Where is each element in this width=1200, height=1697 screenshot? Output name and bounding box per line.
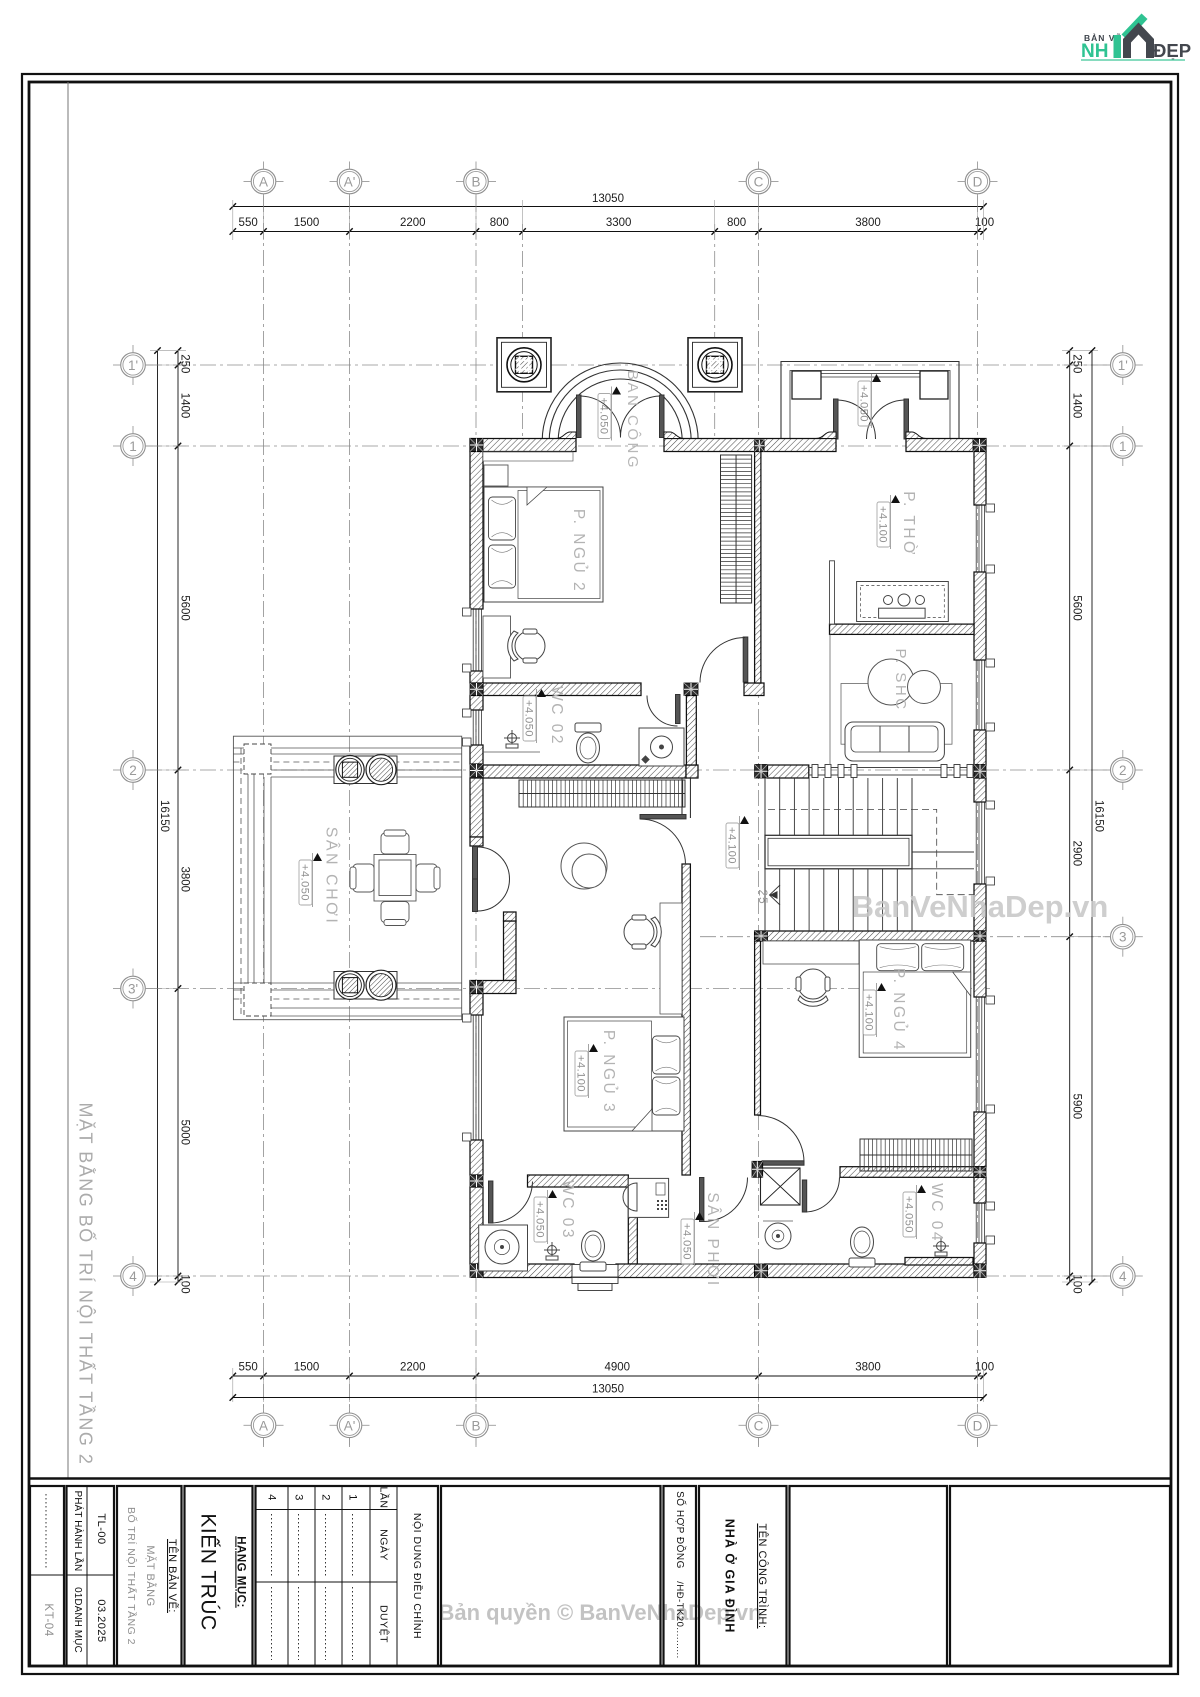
svg-text:KIẾN TRÚC: KIẾN TRÚC bbox=[196, 1513, 219, 1630]
svg-text:A': A' bbox=[344, 175, 356, 190]
svg-text:+4.050: +4.050 bbox=[523, 700, 535, 737]
svg-text:2: 2 bbox=[129, 763, 137, 778]
svg-text:550: 550 bbox=[239, 1362, 258, 1374]
svg-text:3: 3 bbox=[1119, 930, 1127, 945]
svg-text:A: A bbox=[259, 175, 268, 190]
svg-text:+4.100: +4.100 bbox=[575, 1055, 587, 1092]
svg-text:1400: 1400 bbox=[1070, 393, 1082, 419]
svg-text:550: 550 bbox=[239, 217, 258, 229]
svg-text:WC 03: WC 03 bbox=[559, 1180, 576, 1240]
svg-text:MẶT BẰNG BỐ TRÍ NỘI THẤT TẦNG: MẶT BẰNG BỐ TRÍ NỘI THẤT TẦNG 2 bbox=[75, 1103, 96, 1466]
svg-text:P. NGỦ 4: P. NGỦ 4 bbox=[890, 968, 908, 1052]
svg-text:1: 1 bbox=[129, 439, 137, 454]
svg-text:NHÀ Ở GIA ĐÌNH: NHÀ Ở GIA ĐÌNH bbox=[723, 1519, 738, 1633]
svg-text:+4.100: +4.100 bbox=[726, 827, 738, 864]
svg-text:5900: 5900 bbox=[1070, 1094, 1082, 1120]
svg-text:P. NGỦ 2: P. NGỦ 2 bbox=[570, 509, 588, 593]
svg-text:+4.050: +4.050 bbox=[681, 1223, 693, 1260]
svg-text:+4.100: +4.100 bbox=[863, 994, 875, 1031]
svg-text:B: B bbox=[471, 175, 480, 190]
svg-text:03.2025: 03.2025 bbox=[95, 1599, 107, 1642]
svg-text:3300: 3300 bbox=[606, 217, 632, 229]
svg-text:1': 1' bbox=[1118, 358, 1128, 373]
svg-text:5600: 5600 bbox=[1070, 595, 1082, 621]
svg-text:3800: 3800 bbox=[855, 217, 881, 229]
svg-text:LẦN: LẦN bbox=[378, 1487, 391, 1509]
svg-text:A': A' bbox=[344, 1418, 356, 1433]
svg-text:5000: 5000 bbox=[178, 1119, 190, 1145]
svg-text:+4.050: +4.050 bbox=[598, 398, 610, 435]
svg-text:SÂN PHƠI: SÂN PHƠI bbox=[704, 1192, 721, 1287]
svg-text:NỘI DUNG ĐIỀU CHỈNH: NỘI DUNG ĐIỀU CHỈNH bbox=[411, 1513, 424, 1639]
svg-text:DUYỆT: DUYỆT bbox=[378, 1605, 391, 1643]
svg-text:BỐ TRÍ NỘI THẤT TẦNG 2: BỐ TRÍ NỘI THẤT TẦNG 2 bbox=[125, 1507, 139, 1645]
svg-text:1: 1 bbox=[1119, 439, 1127, 454]
svg-text:D: D bbox=[973, 175, 983, 190]
svg-text:2900: 2900 bbox=[1070, 841, 1082, 867]
svg-text:800: 800 bbox=[727, 217, 746, 229]
svg-text:16150: 16150 bbox=[1092, 800, 1104, 832]
svg-text:4: 4 bbox=[129, 1269, 137, 1284]
svg-text:TÊN CÔNG TRÌNH:: TÊN CÔNG TRÌNH: bbox=[756, 1523, 769, 1628]
svg-text:100: 100 bbox=[178, 1274, 190, 1293]
svg-text:2: 2 bbox=[1119, 763, 1127, 778]
svg-text:250: 250 bbox=[1070, 354, 1082, 373]
svg-text:HẠNG MỤC:: HẠNG MỤC: bbox=[234, 1536, 246, 1608]
svg-text:WC 04: WC 04 bbox=[928, 1183, 945, 1243]
svg-text:1: 1 bbox=[347, 1494, 359, 1501]
svg-text:2: 2 bbox=[320, 1494, 332, 1501]
svg-text:1400: 1400 bbox=[178, 393, 190, 419]
svg-text:+4.050: +4.050 bbox=[858, 385, 870, 422]
svg-text:3800: 3800 bbox=[855, 1362, 881, 1374]
svg-text:P. THỜ: P. THỜ bbox=[900, 491, 917, 557]
svg-text:13050: 13050 bbox=[592, 1384, 624, 1396]
svg-text:Bản quyền © BanVeNhaDep.vn: Bản quyền © BanVeNhaDep.vn bbox=[438, 1600, 761, 1625]
svg-text:BAN CÔNG: BAN CÔNG bbox=[624, 370, 641, 470]
svg-text:TL-00: TL-00 bbox=[95, 1513, 107, 1544]
svg-text:P. SHC: P. SHC bbox=[892, 648, 909, 711]
svg-text:/HĐ-TK20..........: /HĐ-TK20.......... bbox=[674, 1581, 685, 1659]
svg-text:800: 800 bbox=[490, 217, 509, 229]
svg-text:3800: 3800 bbox=[178, 866, 190, 892]
svg-text:D: D bbox=[973, 1418, 983, 1433]
svg-text:SỐ HỢP ĐỒNG: SỐ HỢP ĐỒNG bbox=[674, 1491, 688, 1569]
svg-text:+4.100: +4.100 bbox=[877, 506, 889, 543]
svg-text:3': 3' bbox=[128, 982, 138, 997]
svg-text:C: C bbox=[754, 175, 764, 190]
svg-text:TÊN BẢN VẼ:: TÊN BẢN VẼ: bbox=[166, 1539, 179, 1613]
svg-text:01DANH MỤC: 01DANH MỤC bbox=[72, 1587, 83, 1653]
svg-text:250: 250 bbox=[178, 354, 190, 373]
svg-text:25: 25 bbox=[756, 889, 770, 904]
svg-text:B: B bbox=[471, 1418, 480, 1433]
svg-text:C: C bbox=[754, 1418, 764, 1433]
svg-text:4: 4 bbox=[266, 1494, 278, 1501]
svg-text:KT-04: KT-04 bbox=[42, 1603, 54, 1636]
svg-text:NH: NH bbox=[1081, 41, 1108, 62]
svg-text:4: 4 bbox=[1119, 1269, 1127, 1284]
svg-text:5600: 5600 bbox=[178, 595, 190, 621]
svg-text:13050: 13050 bbox=[592, 193, 624, 205]
svg-text:P. NGỦ 3: P. NGỦ 3 bbox=[600, 1030, 618, 1114]
svg-text:2200: 2200 bbox=[400, 1362, 426, 1374]
svg-text:A: A bbox=[259, 1418, 268, 1433]
svg-text:16150: 16150 bbox=[158, 800, 170, 832]
svg-text:PHÁT HÀNH LẦN: PHÁT HÀNH LẦN bbox=[72, 1491, 83, 1572]
svg-text:BanVeNhaDep.vn: BanVeNhaDep.vn bbox=[852, 889, 1109, 924]
svg-text:100: 100 bbox=[1070, 1274, 1082, 1293]
svg-text:3: 3 bbox=[293, 1494, 305, 1501]
svg-text:ĐẸP: ĐẸP bbox=[1153, 40, 1191, 61]
svg-text:1500: 1500 bbox=[294, 217, 320, 229]
svg-text:+4.050: +4.050 bbox=[534, 1201, 546, 1238]
svg-text:WC 02: WC 02 bbox=[548, 686, 565, 746]
svg-text:SÂN CHƠI: SÂN CHƠI bbox=[322, 827, 341, 926]
svg-text:NGÀY: NGÀY bbox=[378, 1529, 391, 1561]
svg-text:1': 1' bbox=[128, 358, 138, 373]
svg-text:4900: 4900 bbox=[604, 1362, 630, 1374]
svg-text:+4.050: +4.050 bbox=[299, 864, 311, 901]
svg-text:MẶT BẰNG: MẶT BẰNG bbox=[144, 1545, 157, 1606]
svg-text:1500: 1500 bbox=[294, 1362, 320, 1374]
svg-text:+4.050: +4.050 bbox=[903, 1196, 915, 1233]
svg-text:2200: 2200 bbox=[400, 217, 426, 229]
